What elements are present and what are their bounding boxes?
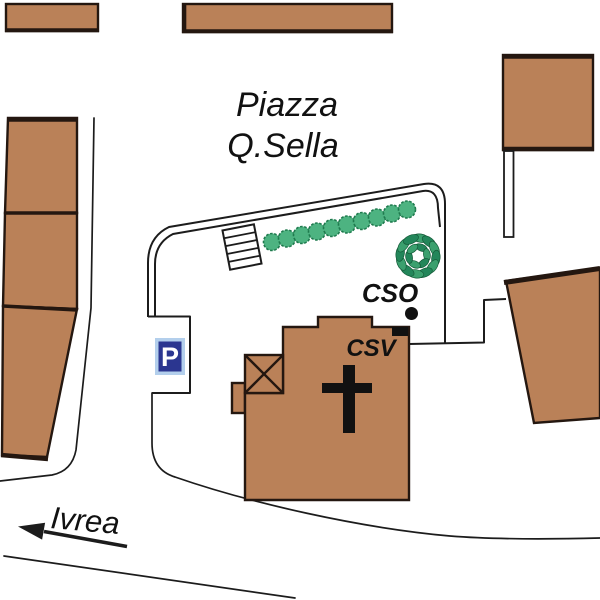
cso-marker-dot (405, 307, 418, 320)
building (5, 118, 77, 213)
parking-sign-letter: P (161, 342, 179, 372)
building (183, 4, 392, 32)
tree-icon (339, 216, 356, 233)
tree-icon (384, 205, 401, 222)
parking-sign: P (155, 338, 185, 375)
church-annex (232, 383, 245, 413)
tree-icon (264, 234, 281, 251)
piazza-title-line2: Q.Sella (227, 127, 339, 165)
building (6, 4, 98, 31)
tree-icon (354, 213, 371, 230)
piazza-title-line1: Piazza (236, 86, 338, 124)
tree-icon (399, 201, 416, 218)
tree-icon (294, 227, 311, 244)
church-tower (245, 355, 283, 393)
cso-label: CSO (362, 278, 418, 308)
wall (504, 151, 514, 237)
tree-icon (279, 230, 296, 247)
tree-icon (369, 209, 386, 226)
csv-label: CSV (346, 335, 397, 362)
building (503, 55, 593, 150)
stairs-icon (222, 224, 261, 269)
tree-icon (324, 220, 341, 237)
building (3, 213, 77, 309)
piazza-map: P Piazza Q.Sella CSO CSV Ivrea (0, 0, 600, 600)
tree-icon (309, 223, 326, 240)
